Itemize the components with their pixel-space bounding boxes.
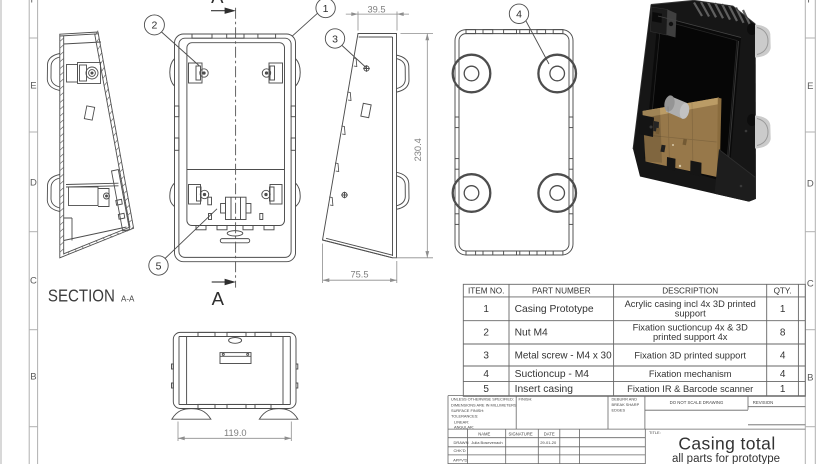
- svg-text:C: C: [30, 275, 37, 286]
- svg-text:NAME: NAME: [478, 431, 490, 436]
- svg-text:DATE: DATE: [544, 431, 555, 436]
- svg-text:Fixation IR & Barcode scanner: Fixation IR & Barcode scanner: [627, 384, 753, 394]
- svg-text:4: 4: [780, 350, 786, 361]
- svg-text:BREAK SHARP: BREAK SHARP: [612, 402, 640, 407]
- svg-text:all parts for prototype: all parts for prototype: [672, 453, 780, 464]
- svg-text:F: F: [807, 0, 813, 6]
- svg-text:F: F: [30, 0, 36, 6]
- svg-text:1: 1: [780, 304, 786, 315]
- svg-text:1: 1: [780, 384, 786, 395]
- svg-text:Casing total: Casing total: [678, 434, 775, 454]
- svg-text:C: C: [807, 278, 814, 289]
- svg-text:DRAWN: DRAWN: [454, 440, 469, 445]
- svg-text:230.4: 230.4: [413, 138, 423, 161]
- svg-text:1: 1: [323, 3, 329, 15]
- svg-text:CHK'D: CHK'D: [454, 448, 466, 453]
- svg-text:B: B: [807, 372, 813, 383]
- svg-text:8: 8: [780, 328, 786, 339]
- svg-text:FINISH:: FINISH:: [519, 396, 533, 401]
- svg-text:TOLERANCES:: TOLERANCES:: [451, 414, 478, 419]
- svg-text:D: D: [807, 178, 814, 189]
- svg-text:29-01-20: 29-01-20: [540, 440, 557, 445]
- svg-text:3: 3: [332, 33, 338, 45]
- svg-text:Metal screw - M4 x 30: Metal screw - M4 x 30: [515, 350, 612, 361]
- svg-text:3: 3: [483, 350, 489, 361]
- svg-text:75.5: 75.5: [350, 269, 368, 279]
- svg-text:A-A: A-A: [121, 295, 135, 304]
- svg-text:D: D: [30, 177, 37, 188]
- svg-text:Fixation mechanism: Fixation mechanism: [649, 369, 732, 379]
- svg-text:ANGULAR:: ANGULAR:: [454, 424, 474, 429]
- svg-text:1: 1: [483, 304, 489, 315]
- svg-text:APPV'D: APPV'D: [453, 457, 467, 462]
- svg-text:SECTION: SECTION: [48, 286, 115, 306]
- svg-text:4: 4: [780, 369, 786, 380]
- svg-text:4: 4: [483, 369, 489, 380]
- svg-text:4: 4: [516, 9, 522, 21]
- svg-text:printed support 4x: printed support 4x: [653, 332, 728, 342]
- svg-text:DESCRIPTION: DESCRIPTION: [662, 287, 718, 296]
- svg-text:QTY.: QTY.: [774, 287, 792, 296]
- svg-text:DO NOT SCALE DRAWING: DO NOT SCALE DRAWING: [670, 400, 724, 405]
- svg-text:119.0: 119.0: [224, 428, 247, 438]
- svg-text:Fixation suctioncup 4x & 3D: Fixation suctioncup 4x & 3D: [633, 323, 749, 333]
- svg-text:DIMENSIONS ARE IN MILLIMETERS: DIMENSIONS ARE IN MILLIMETERS: [451, 403, 517, 408]
- svg-text:2: 2: [151, 20, 157, 32]
- svg-text:UNLESS OTHERWISE SPECIFIED:: UNLESS OTHERWISE SPECIFIED:: [451, 396, 514, 401]
- svg-text:A: A: [212, 288, 225, 309]
- svg-text:A: A: [211, 0, 224, 7]
- svg-text:EDGES: EDGES: [612, 408, 626, 413]
- svg-text:5: 5: [156, 260, 162, 272]
- svg-text:SURFACE FINISH:: SURFACE FINISH:: [451, 408, 484, 413]
- svg-text:Suctioncup - M4: Suctioncup - M4: [515, 369, 590, 380]
- svg-text:E: E: [807, 81, 813, 92]
- svg-text:DEBURR AND: DEBURR AND: [612, 396, 638, 401]
- svg-text:Casing Prototype: Casing Prototype: [515, 304, 594, 315]
- svg-text:B: B: [30, 371, 36, 382]
- svg-text:5: 5: [483, 384, 489, 395]
- svg-text:Insert casing: Insert casing: [515, 384, 574, 395]
- svg-text:39.5: 39.5: [367, 4, 385, 14]
- svg-text:TITLE:: TITLE:: [649, 430, 661, 435]
- svg-text:ITEM NO.: ITEM NO.: [468, 287, 504, 296]
- svg-text:2: 2: [483, 328, 489, 339]
- svg-text:SIGNATURE: SIGNATURE: [509, 431, 533, 436]
- svg-text:support: support: [675, 308, 706, 318]
- svg-text:Acrylic casing incl 4x 3D prin: Acrylic casing incl 4x 3D printed: [625, 299, 756, 309]
- svg-text:Fixation 3D printed support: Fixation 3D printed support: [634, 350, 746, 360]
- svg-text:E: E: [30, 80, 36, 91]
- svg-text:PART NUMBER: PART NUMBER: [532, 287, 591, 296]
- svg-text:Nut M4: Nut M4: [515, 328, 548, 339]
- svg-text:REVISION: REVISION: [753, 400, 774, 405]
- svg-text:Julia Bosevenach: Julia Bosevenach: [471, 440, 502, 445]
